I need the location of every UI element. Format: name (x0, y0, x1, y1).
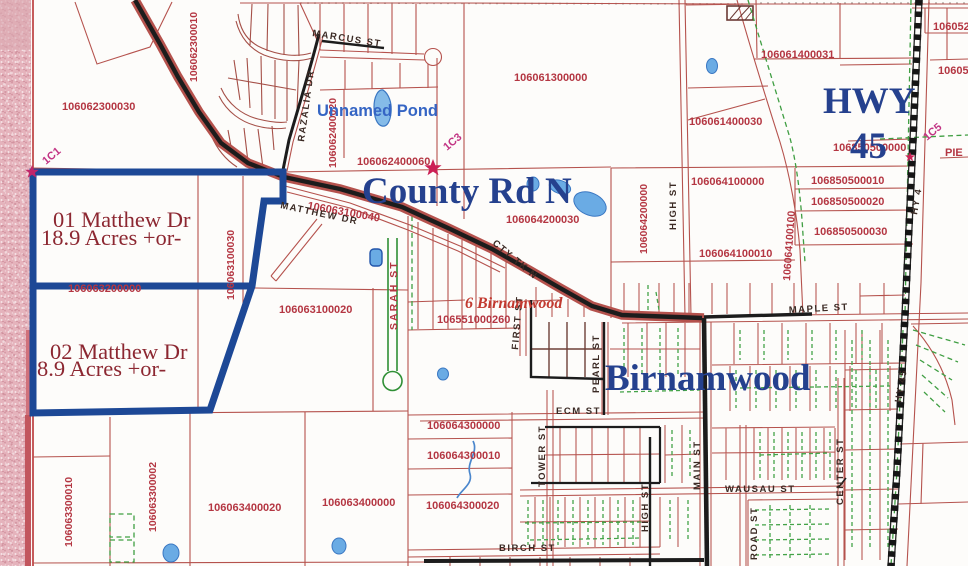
svg-text:10605200: 10605200 (933, 21, 968, 33)
svg-text:106064200030: 106064200030 (506, 214, 579, 226)
svg-text:PEARL ST: PEARL ST (591, 334, 602, 393)
svg-text:106063400020: 106063400020 (208, 502, 281, 514)
svg-text:SARAH ST: SARAH ST (388, 260, 400, 330)
svg-text:HWY: HWY (823, 81, 916, 122)
svg-text:45: 45 (850, 126, 887, 167)
svg-text:106064300020: 106064300020 (426, 500, 499, 512)
svg-text:6 Birnamwood: 6 Birnamwood (465, 295, 563, 312)
svg-text:18.9 Acres +or-: 18.9 Acres +or- (41, 225, 181, 250)
svg-text:MAIN ST: MAIN ST (692, 440, 703, 490)
svg-text:HIGH ST: HIGH ST (640, 483, 651, 532)
svg-text:106064100010: 106064100010 (699, 248, 772, 260)
svg-text:CENTER ST: CENTER ST (835, 438, 846, 505)
svg-text:106064100000: 106064100000 (691, 176, 764, 188)
svg-text:Birnamwood: Birnamwood (605, 358, 811, 399)
svg-text:106061400030: 106061400030 (689, 116, 762, 128)
svg-text:106062300010: 106062300010 (188, 12, 200, 82)
svg-text:106063400000: 106063400000 (322, 497, 395, 509)
svg-text:106850500030: 106850500030 (814, 226, 887, 238)
svg-text:106551000260: 106551000260 (437, 314, 510, 326)
svg-text:106850500010: 106850500010 (811, 175, 884, 187)
svg-text:1060505: 1060505 (938, 65, 968, 77)
svg-text:PIE: PIE (945, 147, 963, 159)
svg-text:106064200000: 106064200000 (638, 184, 650, 254)
svg-text:106061300000: 106061300000 (514, 72, 587, 84)
svg-text:BIRCH ST: BIRCH ST (499, 543, 556, 554)
svg-text:106064300000: 106064300000 (427, 420, 500, 432)
svg-text:106063300002: 106063300002 (147, 462, 159, 532)
svg-text:TOWER ST: TOWER ST (537, 425, 548, 487)
svg-text:106062400060: 106062400060 (357, 156, 430, 168)
svg-text:106850500020: 106850500020 (811, 196, 884, 208)
svg-text:ROAD ST: ROAD ST (749, 507, 760, 560)
svg-text:ECM ST: ECM ST (556, 406, 601, 417)
svg-text:106062300030: 106062300030 (62, 101, 135, 113)
svg-text:HIGH ST: HIGH ST (668, 181, 679, 230)
svg-text:106064300010: 106064300010 (427, 450, 500, 462)
svg-text:Unnamed Pond: Unnamed Pond (317, 102, 438, 120)
svg-text:106063300010: 106063300010 (63, 477, 75, 547)
svg-text:106063100030: 106063100030 (225, 230, 237, 300)
svg-text:WAUSAU ST: WAUSAU ST (725, 484, 796, 495)
svg-text:106061400031: 106061400031 (761, 49, 834, 61)
svg-text:106063100020: 106063100020 (279, 304, 352, 316)
svg-text:County Rd N: County Rd N (362, 171, 572, 212)
svg-text:106063200000: 106063200000 (68, 283, 141, 295)
svg-text:8.9 Acres +or-: 8.9 Acres +or- (37, 356, 166, 381)
